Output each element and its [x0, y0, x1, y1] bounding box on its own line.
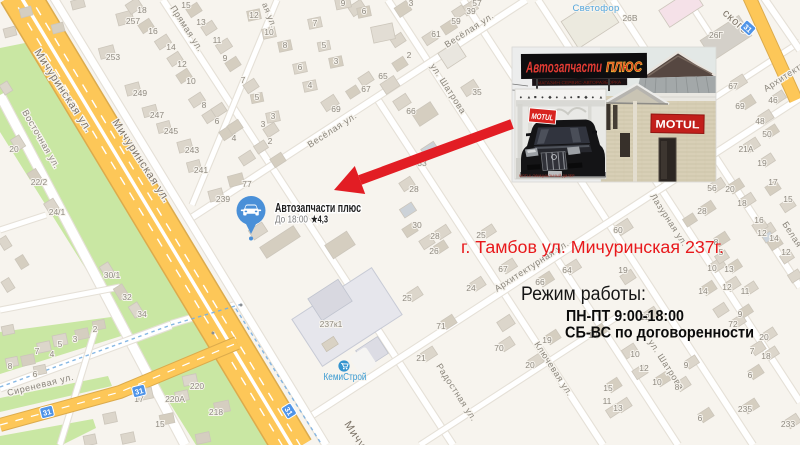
svg-text:12: 12 — [249, 10, 259, 20]
svg-text:12: 12 — [177, 59, 187, 69]
svg-text:61: 61 — [431, 29, 441, 39]
svg-text:★4,3: ★4,3 — [311, 215, 328, 226]
svg-text:28: 28 — [697, 206, 707, 216]
svg-text:Автозапчасти: Автозапчасти — [525, 59, 602, 77]
svg-text:7: 7 — [313, 18, 318, 28]
svg-text:6: 6 — [215, 116, 220, 126]
svg-text:39: 39 — [466, 6, 476, 16]
svg-text:6: 6 — [698, 413, 703, 423]
svg-text:19: 19 — [618, 265, 628, 275]
svg-text:14: 14 — [769, 233, 779, 243]
svg-text:9: 9 — [341, 0, 346, 8]
svg-text:5: 5 — [322, 40, 327, 50]
svg-text:13: 13 — [613, 403, 623, 413]
svg-text:28: 28 — [409, 184, 419, 194]
svg-text:60: 60 — [613, 225, 623, 235]
svg-text:9: 9 — [223, 53, 228, 63]
svg-text:243: 243 — [185, 145, 199, 155]
svg-text:218: 218 — [209, 407, 223, 417]
svg-text:8: 8 — [675, 382, 680, 392]
svg-text:46: 46 — [768, 95, 778, 105]
svg-text:30/1: 30/1 — [104, 270, 121, 280]
svg-text:8: 8 — [202, 100, 207, 110]
svg-text:32: 32 — [122, 292, 132, 302]
svg-text:71: 71 — [436, 321, 446, 331]
svg-text:4: 4 — [232, 133, 237, 143]
svg-text:220А: 220А — [165, 394, 185, 404]
svg-text:20: 20 — [9, 144, 19, 154]
svg-text:6: 6 — [33, 369, 38, 379]
svg-text:48: 48 — [755, 116, 765, 126]
svg-text:MOTUL: MOTUL — [531, 112, 554, 123]
svg-text:▲: ▲ — [599, 95, 603, 100]
svg-text:6: 6 — [748, 370, 753, 380]
svg-text:237к1: 237к1 — [320, 319, 343, 329]
svg-text:18: 18 — [737, 198, 747, 208]
svg-text:7: 7 — [35, 346, 40, 356]
svg-text:22/2: 22/2 — [31, 177, 48, 187]
svg-text:4: 4 — [50, 349, 55, 359]
svg-text:14: 14 — [698, 286, 708, 296]
svg-text:241: 241 — [194, 165, 208, 175]
svg-text:■: ■ — [577, 95, 580, 100]
svg-text:34: 34 — [137, 309, 147, 319]
svg-text:ПЛЮС: ПЛЮС — [606, 58, 643, 74]
svg-text:35: 35 — [472, 87, 482, 97]
svg-text:2: 2 — [93, 324, 98, 334]
svg-text:ПН-ПТ 9:00-18:00: ПН-ПТ 9:00-18:00 — [566, 308, 684, 325]
svg-text:MOTUL ОФИЦИАЛЬНЫЙ ДИЛЕР: MOTUL ОФИЦИАЛЬНЫЙ ДИЛЕР — [519, 174, 575, 178]
svg-text:9: 9 — [684, 360, 689, 370]
svg-text:20: 20 — [725, 184, 735, 194]
svg-text:257: 257 — [126, 16, 140, 26]
svg-text:◆: ◆ — [548, 95, 552, 100]
svg-text:19: 19 — [542, 335, 552, 345]
svg-text:67: 67 — [498, 264, 508, 274]
svg-text:Светофор: Светофор — [572, 3, 619, 14]
svg-text:64: 64 — [562, 265, 572, 275]
svg-text:69: 69 — [331, 104, 341, 114]
svg-text:2: 2 — [407, 50, 412, 60]
svg-text:20: 20 — [759, 332, 769, 342]
svg-text:25: 25 — [402, 293, 412, 303]
svg-text:10: 10 — [264, 27, 274, 37]
svg-text:▲: ▲ — [527, 95, 531, 100]
svg-text:56: 56 — [707, 183, 717, 193]
svg-text:8: 8 — [8, 361, 13, 371]
svg-text:13: 13 — [724, 264, 734, 274]
svg-text:15: 15 — [783, 194, 793, 204]
svg-text:2: 2 — [268, 136, 273, 146]
svg-text:●: ● — [592, 95, 595, 100]
svg-text:233: 233 — [781, 419, 795, 429]
svg-text:59: 59 — [451, 16, 461, 26]
svg-text:8: 8 — [283, 40, 288, 50]
svg-text:5: 5 — [255, 92, 260, 102]
svg-text:3: 3 — [261, 119, 266, 129]
svg-text:12: 12 — [757, 228, 767, 238]
svg-text:16: 16 — [148, 26, 158, 36]
svg-text:19: 19 — [757, 158, 767, 168]
svg-text:3: 3 — [73, 334, 78, 344]
svg-text:10: 10 — [652, 377, 662, 387]
svg-text:67: 67 — [361, 84, 371, 94]
svg-text:●: ● — [570, 95, 573, 100]
svg-text:26: 26 — [429, 246, 439, 256]
svg-text:СБ-ВС по договоренности: СБ-ВС по договоренности — [565, 325, 754, 342]
svg-text:●: ● — [520, 95, 523, 100]
svg-text:12: 12 — [722, 282, 732, 292]
svg-text:235: 235 — [738, 404, 752, 414]
svg-text:21А: 21А — [738, 144, 753, 154]
svg-text:13: 13 — [196, 17, 206, 27]
svg-text:30: 30 — [412, 220, 422, 230]
svg-text:28: 28 — [430, 231, 440, 241]
svg-text:3: 3 — [271, 111, 276, 121]
svg-text:18: 18 — [761, 351, 771, 361]
svg-text:253: 253 — [106, 52, 120, 62]
svg-text:18: 18 — [137, 5, 147, 15]
svg-text:5: 5 — [58, 339, 63, 349]
svg-text:10: 10 — [707, 263, 717, 273]
svg-text:3: 3 — [334, 56, 339, 66]
svg-text:9: 9 — [738, 309, 743, 319]
svg-text:До 18:00: До 18:00 — [275, 214, 308, 226]
svg-text:7: 7 — [750, 346, 755, 356]
svg-text:12: 12 — [781, 247, 791, 257]
svg-text:11: 11 — [603, 396, 612, 406]
svg-text:26В: 26В — [622, 13, 637, 23]
svg-text:77: 77 — [242, 179, 252, 189]
svg-text:10: 10 — [630, 349, 640, 359]
svg-text:■: ■ — [534, 95, 537, 100]
svg-text:67: 67 — [728, 81, 738, 91]
svg-text:г. Тамбов ул. Мичуринская 237г: г. Тамбов ул. Мичуринская 237г. — [461, 237, 724, 257]
svg-text:26Г: 26Г — [709, 30, 723, 40]
svg-text:11: 11 — [741, 286, 750, 296]
svg-text:50: 50 — [762, 129, 772, 139]
svg-text:7: 7 — [241, 75, 246, 85]
svg-text:24/1: 24/1 — [49, 207, 66, 217]
svg-text:●: ● — [556, 95, 559, 100]
svg-text:20: 20 — [525, 360, 535, 370]
svg-text:Режим работы:: Режим работы: — [521, 284, 646, 305]
svg-text:15: 15 — [155, 419, 165, 429]
svg-text:249: 249 — [133, 88, 147, 98]
svg-text:70: 70 — [494, 343, 504, 353]
svg-text:239: 239 — [216, 194, 230, 204]
svg-text:11: 11 — [213, 35, 222, 45]
svg-text:17: 17 — [768, 177, 778, 187]
svg-text:66: 66 — [406, 106, 416, 116]
svg-text:◆: ◆ — [584, 95, 588, 100]
svg-text:247: 247 — [150, 110, 164, 120]
svg-text:КемиСтрой: КемиСтрой — [324, 372, 367, 383]
svg-text:●: ● — [541, 95, 544, 100]
svg-text:14: 14 — [166, 42, 176, 52]
svg-text:24: 24 — [466, 283, 476, 293]
svg-text:10: 10 — [186, 76, 196, 86]
svg-text:220: 220 — [190, 381, 204, 391]
svg-text:21: 21 — [416, 353, 426, 363]
svg-text:6: 6 — [362, 6, 367, 16]
svg-text:15: 15 — [181, 0, 191, 10]
svg-text:MOTUL: MOTUL — [655, 119, 700, 132]
svg-text:15: 15 — [603, 383, 613, 393]
svg-text:65: 65 — [378, 71, 388, 81]
svg-text:3: 3 — [409, 0, 414, 8]
svg-text:12: 12 — [639, 363, 649, 373]
svg-text:4: 4 — [308, 80, 313, 90]
svg-text:245: 245 — [164, 126, 178, 136]
svg-text:16: 16 — [754, 215, 764, 225]
svg-text:6: 6 — [298, 62, 303, 72]
svg-text:▲: ▲ — [563, 95, 567, 100]
svg-text:69: 69 — [735, 101, 745, 111]
